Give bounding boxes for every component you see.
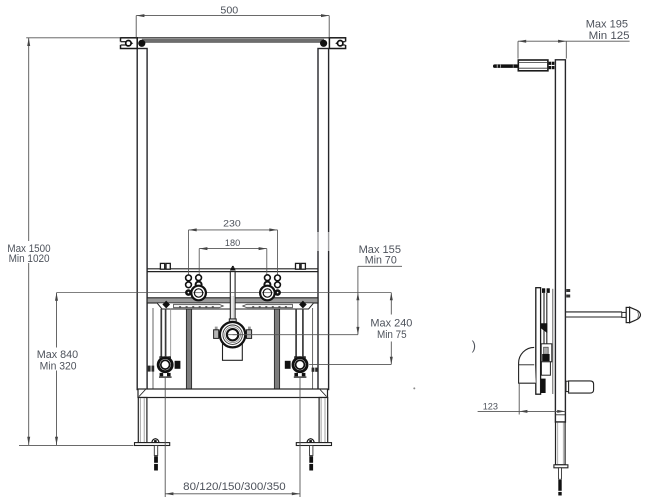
svg-text:Max 240: Max 240 (370, 318, 412, 330)
svg-text:Max 840: Max 840 (37, 349, 78, 361)
svg-text:Min 1020: Min 1020 (9, 253, 50, 265)
svg-text:80/120/150/300/350: 80/120/150/300/350 (183, 481, 285, 493)
svg-text:Min 75: Min 75 (377, 329, 407, 341)
svg-text:Min 320: Min 320 (40, 360, 77, 372)
svg-text:180: 180 (225, 238, 240, 249)
svg-text:Min 70: Min 70 (365, 255, 397, 267)
svg-text:230: 230 (223, 219, 241, 230)
svg-text:): ) (472, 339, 476, 353)
svg-text:Min 125: Min 125 (589, 30, 630, 42)
svg-text:500: 500 (220, 5, 238, 16)
svg-text:Max 195: Max 195 (586, 18, 628, 30)
svg-text:123: 123 (483, 402, 498, 413)
